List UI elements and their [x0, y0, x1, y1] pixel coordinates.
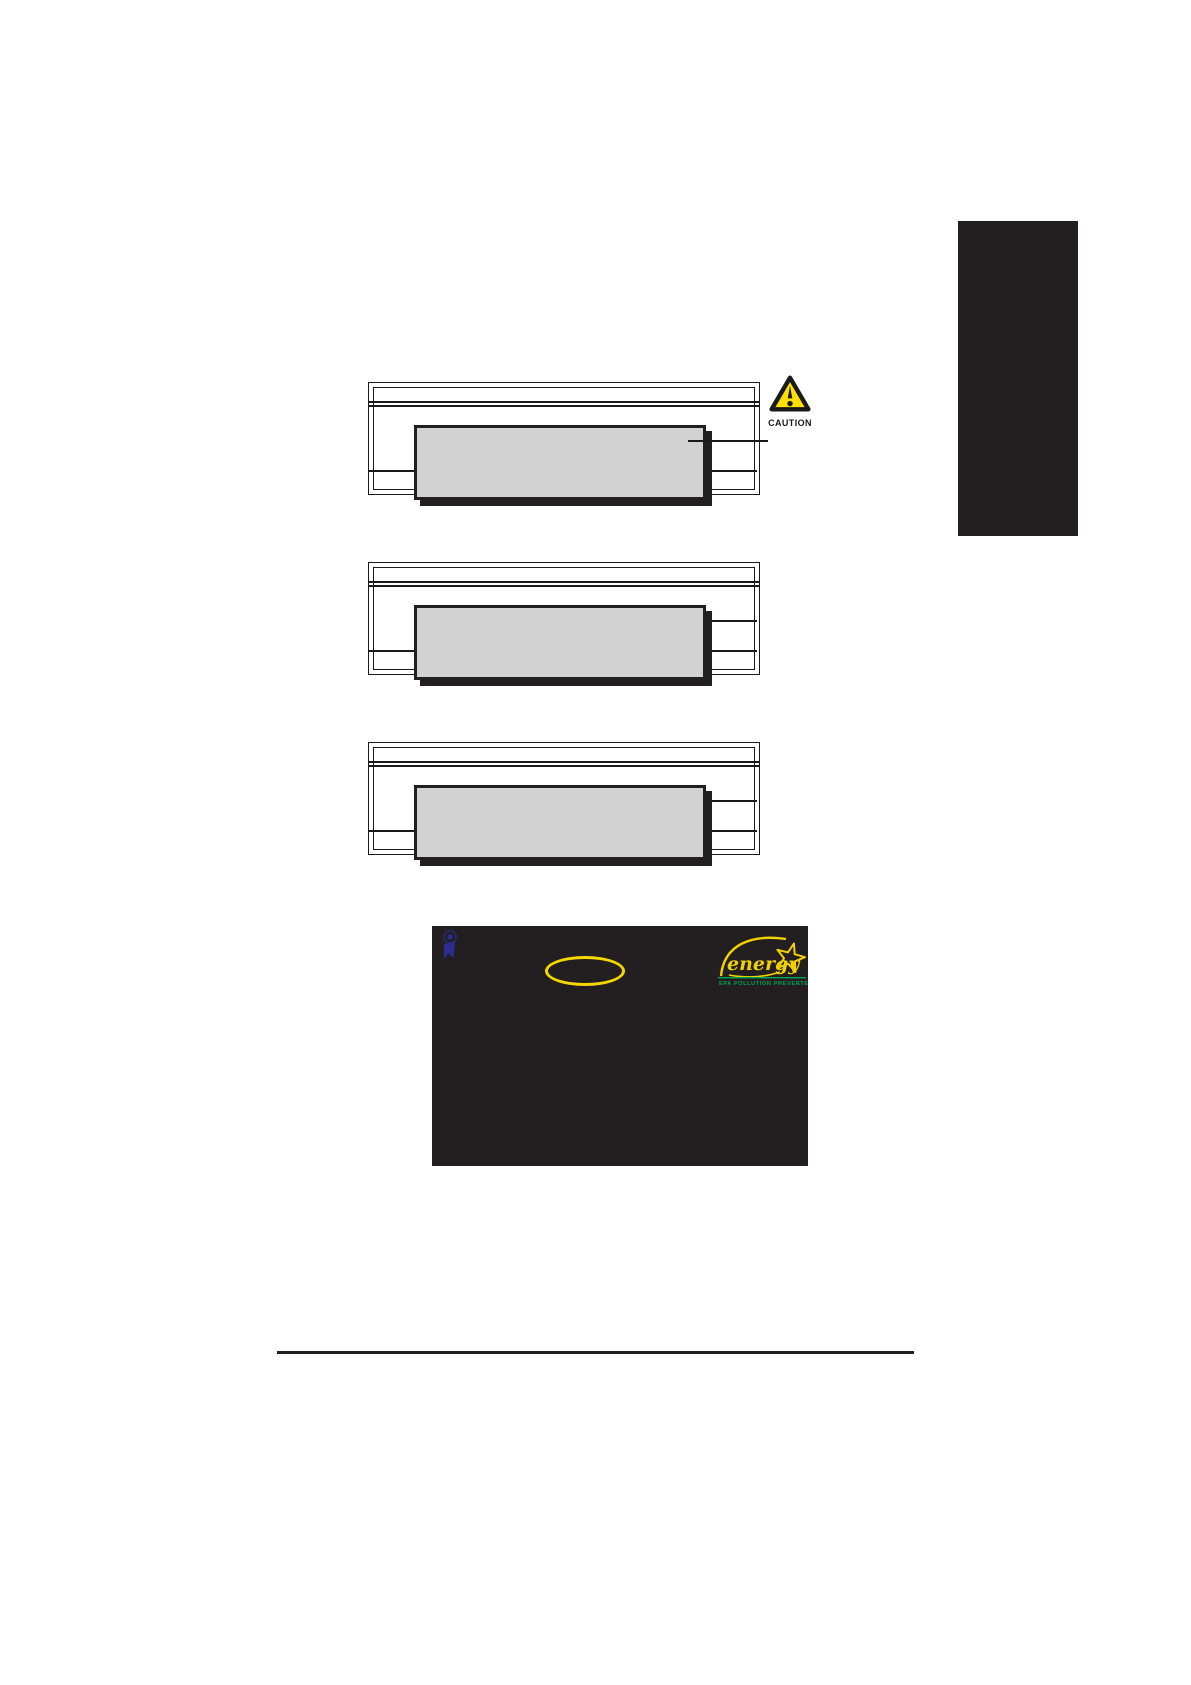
- socket-notch-line: [712, 650, 757, 652]
- socket-rail-line: [368, 401, 760, 403]
- epa-tagline: EPA POLLUTION PREVENTER: [719, 981, 808, 987]
- energy-star-post-screen: energy EPA POLLUTION PREVENTER: [432, 926, 808, 1166]
- socket-notch-line: [712, 470, 757, 472]
- socket-notch-line: [368, 650, 414, 652]
- memory-module: [414, 605, 706, 680]
- manual-page: CAUTION energy: [0, 0, 1191, 1685]
- caution-sign: CAUTION: [766, 375, 814, 428]
- socket-notch-line: [712, 830, 757, 832]
- exclamation-dot: [787, 401, 792, 406]
- memory-module: [414, 425, 706, 500]
- caution-triangle-icon: [769, 375, 811, 412]
- socket-rail-line: [368, 581, 760, 583]
- caution-label: CAUTION: [766, 418, 814, 428]
- socket-rail-line: [368, 405, 760, 407]
- socket-rail-line: [368, 765, 760, 767]
- caution-callout-line: [688, 440, 768, 442]
- dimm-install-diagram-3: [368, 742, 760, 872]
- socket-rail-line: [368, 585, 760, 587]
- footer-rule: [277, 1351, 914, 1354]
- socket-rail-line: [368, 761, 760, 763]
- socket-notch-line: [706, 620, 757, 622]
- socket-notch-line: [368, 830, 414, 832]
- memory-module: [414, 785, 706, 860]
- highlight-ellipse: [545, 956, 625, 986]
- socket-notch-line: [368, 470, 414, 472]
- chapter-tab: [958, 221, 1078, 536]
- ribbon-seal-center: [447, 934, 452, 939]
- award-ribbon-icon: [440, 929, 458, 960]
- tagline-rule: [718, 977, 806, 978]
- dimm-install-diagram-2: [368, 562, 760, 692]
- dimm-install-diagram-1: [368, 382, 760, 512]
- ribbon-banner: [444, 942, 455, 960]
- energy-star-logo: energy EPA POLLUTION PREVENTER: [716, 930, 808, 988]
- energy-word: energy: [727, 953, 801, 975]
- socket-notch-line: [706, 800, 757, 802]
